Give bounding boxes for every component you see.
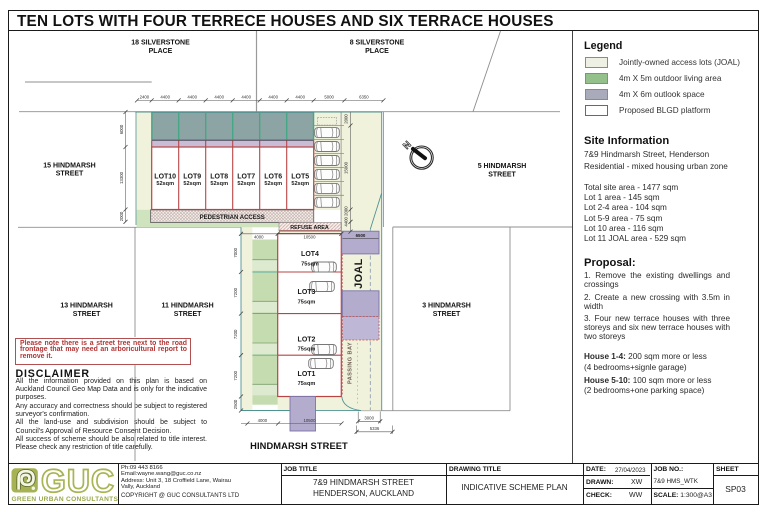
svg-text:STREET: STREET: [174, 311, 202, 318]
svg-text:15000: 15000: [344, 161, 349, 174]
svg-text:4400 2000: 4400 2000: [344, 206, 349, 227]
svg-text:PLACE: PLACE: [149, 48, 173, 55]
svg-text:75sqm: 75sqm: [298, 381, 316, 387]
svg-text:7200: 7200: [233, 287, 238, 297]
svg-text:3000: 3000: [364, 415, 374, 420]
svg-text:18 SILVERSTONE: 18 SILVERSTONE: [131, 40, 190, 47]
svg-text:15 HINDMARSH: 15 HINDMARSH: [43, 162, 96, 169]
svg-text:5000: 5000: [324, 95, 334, 100]
svg-text:STREET: STREET: [73, 311, 101, 318]
svg-text:JOAL: JOAL: [353, 258, 365, 288]
svg-text:LOT6: LOT6: [264, 173, 282, 180]
svg-text:LOT2: LOT2: [298, 336, 316, 343]
svg-text:75sqm: 75sqm: [298, 299, 316, 305]
svg-text:LOT7: LOT7: [237, 173, 255, 180]
svg-text:4400: 4400: [241, 95, 251, 100]
svg-text:PEDESTRIAN ACCESS: PEDESTRIAN ACCESS: [200, 215, 265, 221]
svg-text:10500: 10500: [304, 235, 317, 240]
svg-text:LOT3: LOT3: [298, 289, 316, 296]
svg-text:75sqm: 75sqm: [298, 347, 316, 353]
svg-text:5 HINDMARSH: 5 HINDMARSH: [478, 163, 527, 170]
svg-text:HINDMARSH STREET: HINDMARSH STREET: [250, 441, 348, 451]
svg-text:4400: 4400: [268, 95, 278, 100]
svg-text:STREET: STREET: [488, 172, 516, 179]
svg-text:2400: 2400: [140, 95, 150, 100]
svg-text:PLACE: PLACE: [365, 48, 389, 55]
svg-text:LOT10: LOT10: [154, 173, 176, 180]
svg-text:2000: 2000: [119, 211, 124, 221]
svg-text:GREEN URBAN CONSULTANTS: GREEN URBAN CONSULTANTS: [12, 496, 119, 503]
svg-text:LOT5: LOT5: [291, 173, 309, 180]
svg-text:52sqm: 52sqm: [183, 181, 201, 187]
svg-text:4000: 4000: [254, 235, 264, 240]
svg-text:52sqm: 52sqm: [156, 181, 174, 187]
svg-text:4400: 4400: [214, 95, 224, 100]
svg-text:REFUSE AREA: REFUSE AREA: [290, 225, 329, 231]
svg-text:6350: 6350: [359, 95, 369, 100]
svg-text:2500: 2500: [233, 399, 238, 409]
svg-text:52sqm: 52sqm: [210, 181, 228, 187]
svg-text:7200: 7200: [233, 370, 238, 380]
svg-text:6500: 6500: [356, 233, 366, 238]
svg-text:10500: 10500: [304, 418, 317, 423]
svg-text:PASSING BAY: PASSING BAY: [348, 342, 354, 384]
svg-text:52sqm: 52sqm: [264, 181, 282, 187]
svg-text:LOT8: LOT8: [210, 173, 228, 180]
svg-text:75sqm: 75sqm: [301, 262, 319, 268]
svg-text:7200: 7200: [233, 329, 238, 339]
svg-text:3 HINDMARSH: 3 HINDMARSH: [422, 303, 471, 310]
svg-text:7000: 7000: [233, 247, 238, 257]
svg-text:STREET: STREET: [56, 171, 84, 178]
svg-text:8 SILVERSTONE: 8 SILVERSTONE: [350, 40, 405, 47]
svg-text:STREET: STREET: [433, 311, 461, 318]
svg-text:52sqm: 52sqm: [237, 181, 255, 187]
svg-text:6000: 6000: [119, 124, 124, 134]
svg-text:52sqm: 52sqm: [291, 181, 309, 187]
svg-text:4400: 4400: [295, 95, 305, 100]
svg-text:2000: 2000: [344, 114, 349, 124]
svg-text:LOT4: LOT4: [301, 251, 319, 258]
svg-text:5336: 5336: [370, 426, 380, 431]
svg-text:13 HINDMARSH: 13 HINDMARSH: [60, 303, 113, 310]
svg-text:GUC: GUC: [41, 463, 115, 499]
svg-text:LOT1: LOT1: [298, 371, 316, 378]
svg-text:4400: 4400: [160, 95, 170, 100]
svg-text:LOT9: LOT9: [183, 173, 201, 180]
svg-text:11 HINDMARSH: 11 HINDMARSH: [162, 303, 214, 310]
svg-text:4000: 4000: [258, 418, 268, 423]
svg-text:4400: 4400: [187, 95, 197, 100]
svg-text:13300: 13300: [119, 171, 124, 184]
